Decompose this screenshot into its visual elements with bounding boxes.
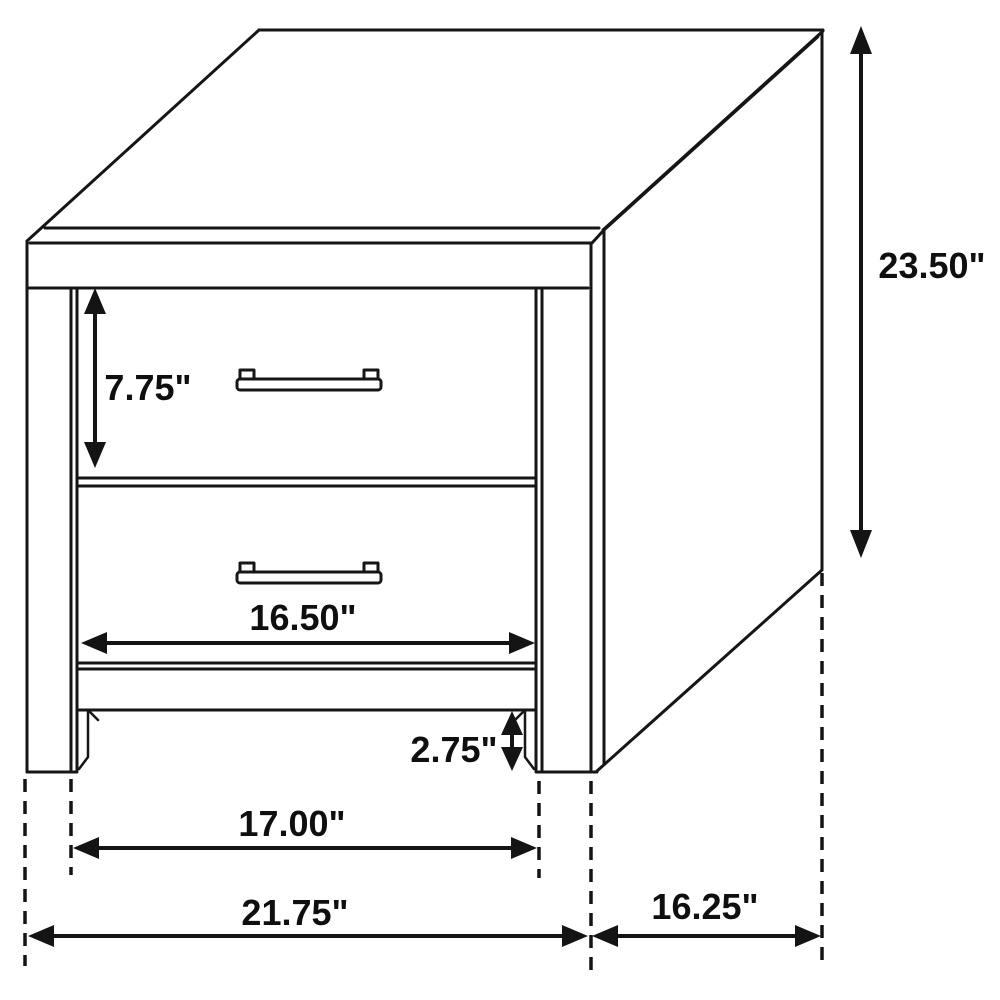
dim-drawer-width-label: 16.50" [249,597,356,638]
arrow-right-icon [562,925,588,947]
dim-depth-label: 16.25" [651,886,758,927]
arrow-left-icon [73,837,99,859]
diagram-canvas: 23.50" 7.75" 16.50" 2.75" 17.00" [0,0,1000,1000]
dim-overall-height: 23.50" [850,26,986,558]
dim-depth: 16.25" [592,886,821,947]
left-stile-edges [71,289,77,770]
top-panel [27,30,823,243]
dim-drawer-height: 7.75" [84,288,192,468]
arrow-left-icon [28,925,54,947]
drawer-divider-edges [77,478,536,486]
dim-overall-width: 21.75" [28,892,588,947]
dim-base-height: 2.75" [410,711,523,771]
drawer2-bottom-edges [77,663,536,669]
arrow-down-icon [501,747,523,771]
arrow-down-icon [850,530,872,558]
arrow-left-icon [592,925,618,947]
top-right-edge-inner [600,37,818,234]
right-stile-edges [536,289,542,770]
dim-leg-span: 17.00" [73,803,537,859]
dim-overall-height-label: 23.50" [878,245,985,286]
side-panel [597,30,822,771]
arrow-up-icon [850,26,872,54]
dim-leg-span-label: 17.00" [238,803,345,844]
dim-overall-width-label: 21.75" [241,892,348,933]
arrow-right-icon [509,632,535,654]
dim-drawer-width: 16.50" [81,597,535,654]
drawer-1-handle [237,370,381,390]
arrow-right-icon [795,925,821,947]
dim-drawer-height-label: 7.75" [104,367,191,408]
dim-base-height-label: 2.75" [410,729,497,770]
arrow-right-icon [511,837,537,859]
side-bottom-edge [597,570,822,771]
top-left-edge [27,30,259,241]
drawer-2-handle [237,563,381,583]
handle-bar [237,572,381,583]
arrow-up-icon [84,288,106,314]
arrow-down-icon [84,442,106,468]
handle-bar [237,379,381,390]
front-outer-edges [27,241,591,772]
front-frame [27,241,597,772]
arrow-left-icon [81,632,107,654]
nightstand-dimension-diagram: 23.50" 7.75" 16.50" 2.75" 17.00" [0,0,1000,1000]
top-front-edges [30,228,603,243]
